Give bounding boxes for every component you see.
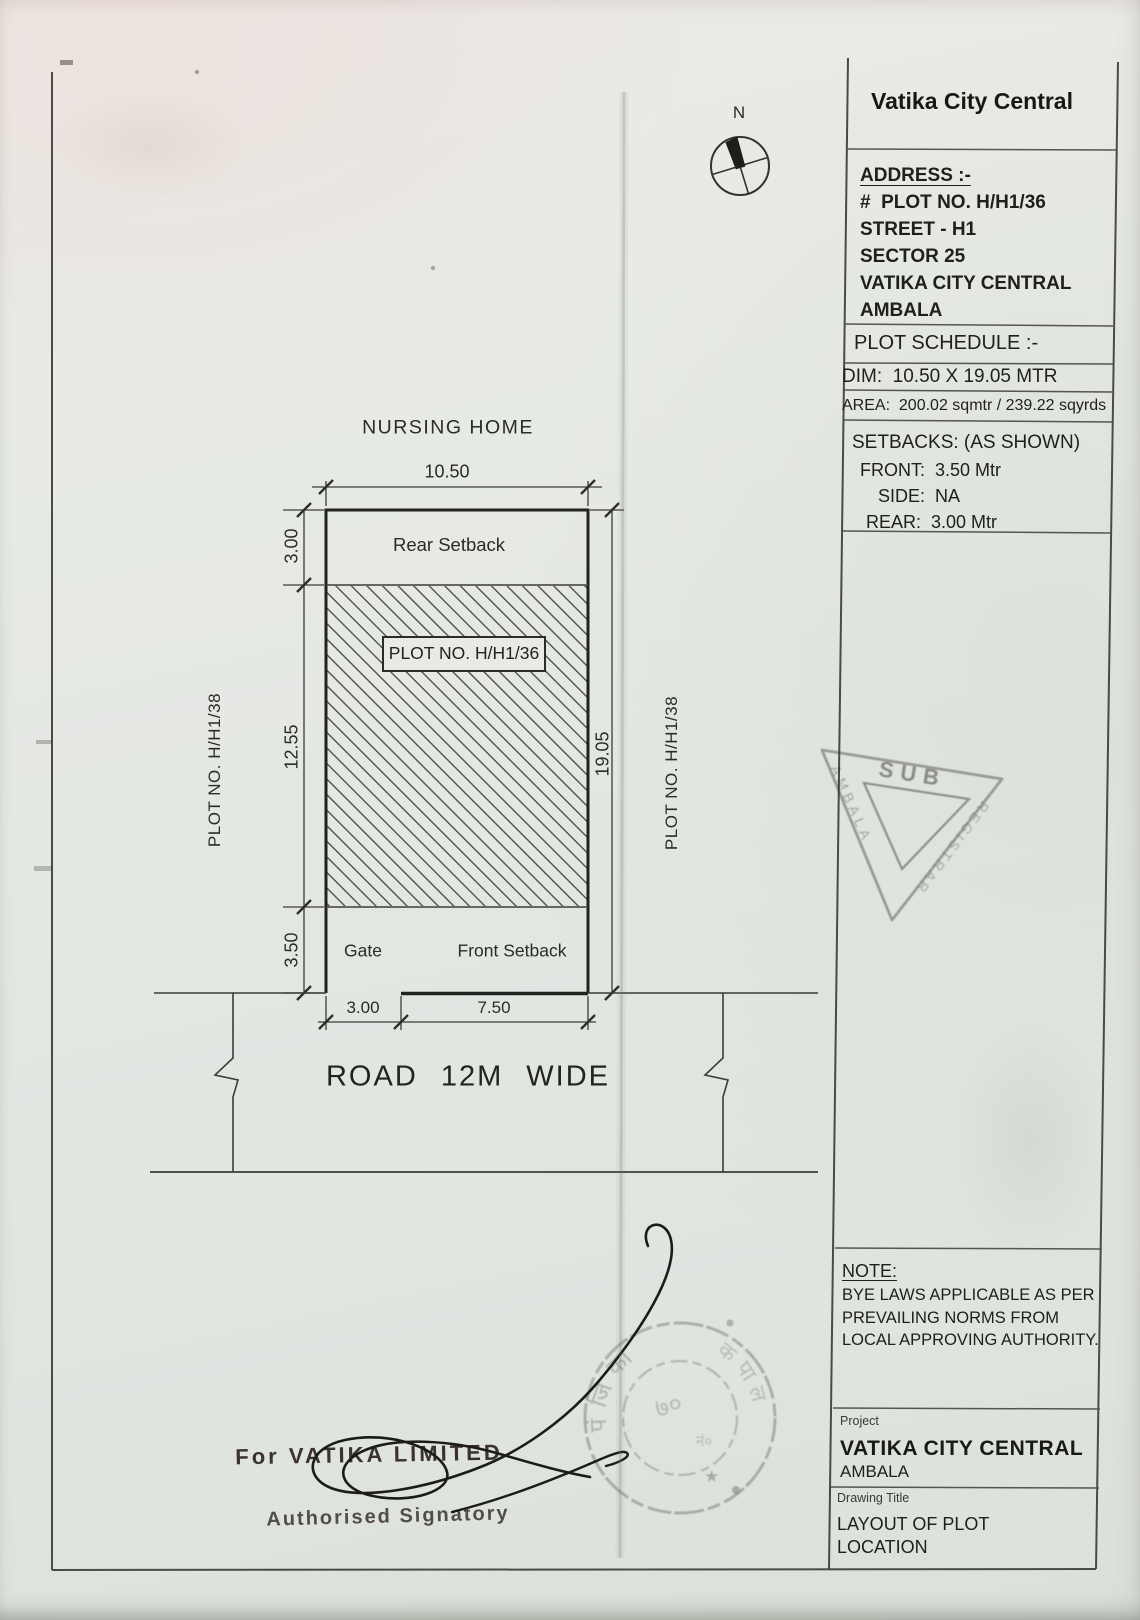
round-stamp-number: ७० xyxy=(651,1387,685,1423)
front-setback-label: Front Setback xyxy=(458,941,567,962)
address-line-plot: # PLOT NO. H/H1/36 xyxy=(860,189,1071,216)
north-compass-icon xyxy=(704,130,776,202)
round-stamp-star: ★ xyxy=(704,1467,719,1486)
setbacks-block: SETBACKS: (AS SHOWN) FRONT: 3.50 Mtr SID… xyxy=(852,429,1080,535)
note-block: NOTE: BYE LAWS APPLICABLE AS PER PREVAIL… xyxy=(842,1259,1099,1352)
round-stamp-arc-right-text: कपाल xyxy=(713,1337,774,1412)
dim-rear-3-00: 3.00 xyxy=(282,528,303,563)
gate-label: Gate xyxy=(344,941,382,962)
stamp-text-ambala: AMBALA xyxy=(827,763,876,846)
round-stamp-arc-top: पंजिका xyxy=(584,1339,644,1433)
nursing-home-label: NURSING HOME xyxy=(362,417,534,440)
titleblock-project-title: Vatika City Central xyxy=(838,82,1106,120)
note-heading: NOTE: xyxy=(842,1259,1099,1284)
border-bottom xyxy=(52,1569,1096,1570)
scanned-plot-layout-sheet: SUB REGISTRAR AMBALA पंजिका कपाल ७० नं० … xyxy=(0,0,1140,1620)
plot-outline xyxy=(326,510,588,994)
note-line-2: PREVAILING NORMS FROM xyxy=(842,1307,1099,1330)
north-label: N xyxy=(733,103,745,123)
scan-artifacts xyxy=(34,60,435,871)
neighbor-plot-right-label: PLOT NO. H/H1/38 xyxy=(662,696,682,850)
sub-registrar-stamp: SUB REGISTRAR AMBALA xyxy=(822,750,1002,920)
dim-gate-3-00: 3.00 xyxy=(346,998,379,1018)
dimension-lines xyxy=(283,481,624,1030)
note-line-3: LOCAL APPROVING AUTHORITY. xyxy=(842,1329,1099,1352)
rear-setback-label: Rear Setback xyxy=(393,534,505,556)
drawing-title-label: Drawing Title xyxy=(837,1491,909,1505)
round-stamp-arc-right: कपाल xyxy=(713,1337,774,1412)
plot-hatch-area xyxy=(327,586,587,906)
paper-crease xyxy=(620,92,624,1558)
dim-front-3-50: 3.50 xyxy=(282,932,303,967)
round-stamp-arc-top-text: पंजिका xyxy=(584,1339,644,1433)
address-heading: ADDRESS :- xyxy=(860,162,1071,189)
dim-top-10-50: 10.50 xyxy=(424,462,469,483)
for-vatika-limited-stamp: For VATIKA LIMITED xyxy=(235,1440,503,1471)
paper-stain xyxy=(950,1020,1110,1260)
address-line-street: STREET - H1 xyxy=(860,216,1071,243)
dim-right-19-05: 19.05 xyxy=(593,731,614,776)
drawing-title-line-1: LAYOUT OF PLOT xyxy=(837,1514,989,1535)
dim-left-12-55: 12.55 xyxy=(282,724,303,769)
authorised-signatory-stamp: Authorised Signatory xyxy=(266,1502,510,1531)
handwritten-signature xyxy=(313,1225,672,1512)
neighbor-plot-left-label: PLOT NO. H/H1/38 xyxy=(205,693,225,847)
road-break-left xyxy=(215,993,238,1172)
project-name: VATIKA CITY CENTRAL xyxy=(840,1437,1083,1461)
plot-number-label: PLOT NO. H/H1/36 xyxy=(389,643,539,663)
plot-schedule-heading: PLOT SCHEDULE :- xyxy=(854,332,1038,355)
project-label: Project xyxy=(840,1414,879,1428)
note-line-1: BYE LAWS APPLICABLE AS PER xyxy=(842,1284,1099,1307)
setback-front: FRONT: 3.50 Mtr xyxy=(860,457,1080,483)
drawing-title-line-2: LOCATION xyxy=(837,1537,928,1558)
plot-dim-row: DIM: 10.50 X 19.05 MTR xyxy=(842,366,1057,388)
stamp-text-registrar: REGISTRAR xyxy=(911,798,992,898)
project-city: AMBALA xyxy=(840,1462,909,1482)
road-label: ROAD 12M WIDE xyxy=(326,1061,610,1094)
plot-number-box: PLOT NO. H/H1/36 xyxy=(382,636,546,672)
plot-area-row: AREA: 200.02 sqmtr / 239.22 sqyrds xyxy=(842,397,1106,415)
address-line-township: VATIKA CITY CENTRAL xyxy=(860,270,1071,297)
paper-stain xyxy=(40,90,260,200)
setbacks-heading: SETBACKS: (AS SHOWN) xyxy=(852,429,1080,457)
address-line-city: AMBALA xyxy=(860,297,1071,324)
stamp-text-sub: SUB xyxy=(877,756,948,791)
dim-front-setback-7-50: 7.50 xyxy=(477,998,510,1018)
road-break-right xyxy=(705,993,728,1172)
border-right xyxy=(1096,62,1118,1569)
address-block: ADDRESS :- # PLOT NO. H/H1/36 STREET - H… xyxy=(860,162,1071,324)
round-stamp-reg: नं० xyxy=(696,1433,712,1450)
setback-side: SIDE: NA xyxy=(878,483,1080,509)
address-line-sector: SECTOR 25 xyxy=(860,243,1071,270)
round-ink-stamp: पंजिका कपाल ७० नं० ★ xyxy=(584,1320,775,1514)
setback-rear: REAR: 3.00 Mtr xyxy=(866,509,1080,535)
